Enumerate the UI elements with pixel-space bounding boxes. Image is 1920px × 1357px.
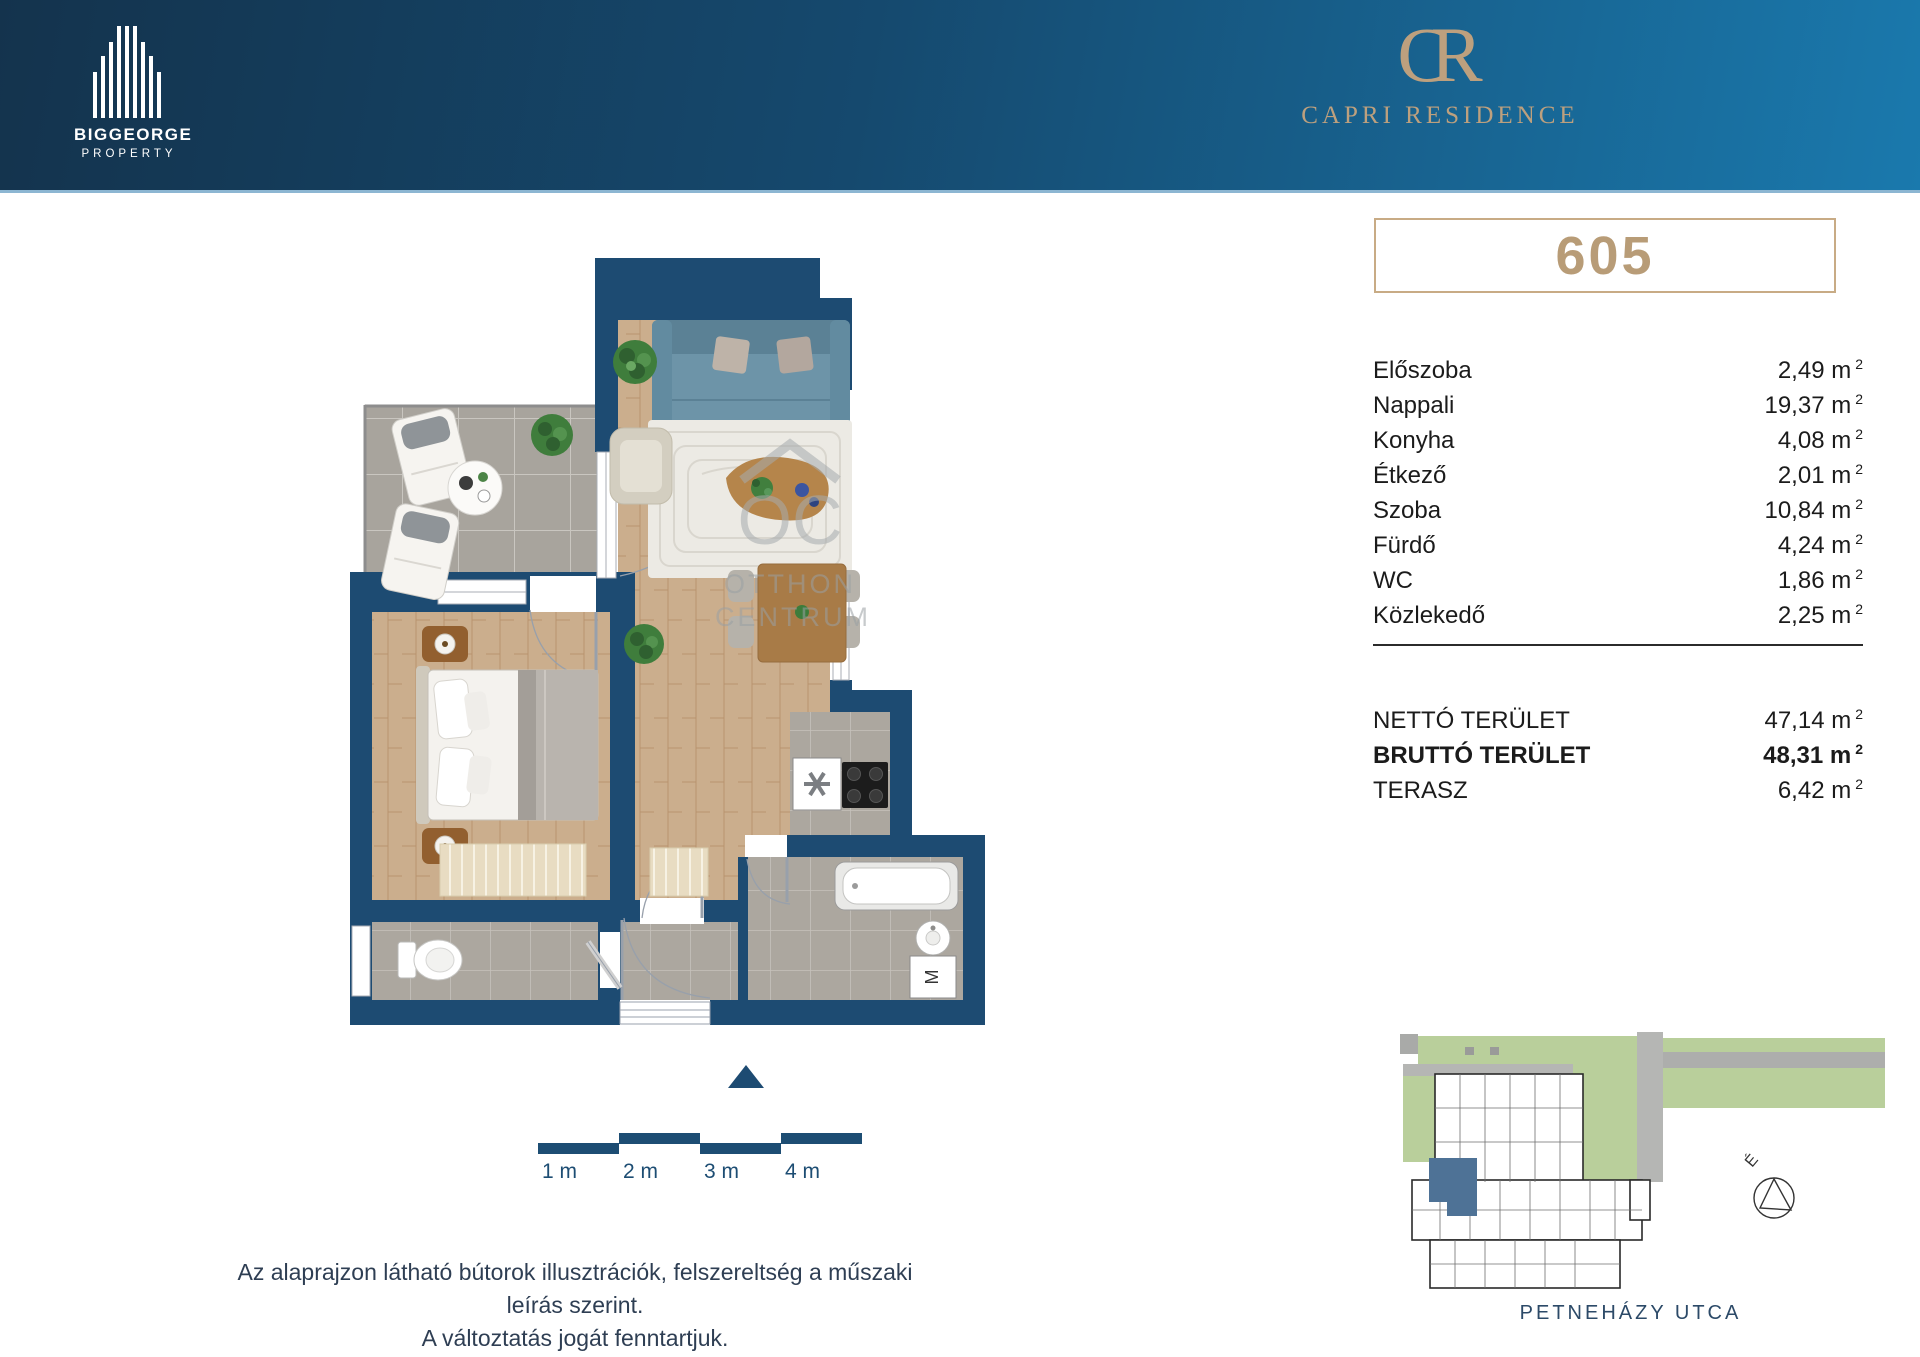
unit-number-box: 605 — [1374, 218, 1836, 293]
room-area: 4,08 m2 — [1778, 426, 1863, 455]
scale-label: 4 m — [785, 1160, 820, 1184]
area-row: WC1,86 m2 — [1373, 566, 1863, 601]
washbasin — [916, 921, 950, 955]
biggeorge-brand-text: BIGGEORGE — [74, 125, 184, 145]
total-label: BRUTTÓ TERÜLET — [1373, 742, 1590, 770]
disclaimer-line2: A változtatás jogát fenntartjuk. — [225, 1322, 925, 1355]
svg-text:OC: OC — [738, 481, 843, 559]
biggeorge-building-icon — [90, 22, 168, 118]
room-label: WC — [1373, 567, 1413, 595]
area-row: Szoba10,84 m2 — [1373, 496, 1863, 531]
room-area: 4,24 m2 — [1778, 531, 1863, 560]
bathtub — [835, 862, 958, 910]
table-divider — [1373, 644, 1863, 646]
header-banner: BIGGEORGE PROPERTY CR CAPRI RESIDENCE — [0, 0, 1920, 193]
total-label: TERASZ — [1373, 777, 1468, 805]
watermark-line2: CENTRUM — [715, 602, 865, 633]
totals-list: NETTÓ TERÜLET47,14 m2BRUTTÓ TERÜLET48,31… — [1373, 706, 1863, 811]
bed — [416, 666, 598, 824]
disclaimer-line1: Az alaprajzon látható bútorok illusztrác… — [225, 1256, 925, 1322]
scale-segment — [619, 1133, 700, 1144]
kitchen-appliances — [793, 758, 888, 810]
washing-machine: M — [910, 956, 956, 998]
room-area: 2,25 m2 — [1778, 601, 1863, 630]
hall-plant — [624, 624, 664, 664]
total-area: 48,31 m2 — [1763, 741, 1863, 770]
scale-label: 3 m — [704, 1160, 739, 1184]
capri-residence-name: CAPRI RESIDENCE — [1280, 102, 1600, 130]
area-row: TERASZ6,42 m2 — [1373, 776, 1863, 811]
area-row: Fürdő4,24 m2 — [1373, 531, 1863, 566]
scale-label: 2 m — [623, 1160, 658, 1184]
room-area: 2,01 m2 — [1778, 461, 1863, 490]
area-row: BRUTTÓ TERÜLET48,31 m2 — [1373, 741, 1863, 776]
room-label: Konyha — [1373, 427, 1454, 455]
scale-segment — [700, 1143, 781, 1154]
room-label: Fürdő — [1373, 532, 1436, 560]
room-area: 1,86 m2 — [1778, 566, 1863, 595]
svg-text:M: M — [922, 970, 942, 985]
area-row: Közlekedő2,25 m2 — [1373, 601, 1863, 636]
biggeorge-logo: BIGGEORGE PROPERTY — [74, 22, 184, 160]
floorplan-sheet: BIGGEORGE PROPERTY CR CAPRI RESIDENCE 60… — [0, 0, 1920, 1357]
street-label: PETNEHÁZY UTCA — [1403, 1302, 1858, 1325]
total-label: NETTÓ TERÜLET — [1373, 707, 1570, 735]
area-row: Nappali19,37 m2 — [1373, 391, 1863, 426]
room-label: Előszoba — [1373, 357, 1472, 385]
apartment-floorplan: M — [290, 250, 1010, 1090]
disclaimer: Az alaprajzon látható bútorok illusztrác… — [225, 1256, 925, 1355]
room-area: 2,49 m2 — [1778, 356, 1863, 385]
capri-residence-logo: CR CAPRI RESIDENCE — [1280, 16, 1600, 130]
nightstand-top — [422, 626, 468, 662]
toilet — [398, 940, 462, 980]
otthon-centrum-logo-icon: OC — [720, 432, 860, 562]
biggeorge-sub-text: PROPERTY — [74, 148, 184, 160]
hall-doormat — [650, 848, 708, 896]
area-row: Konyha4,08 m2 — [1373, 426, 1863, 461]
terrace-plant — [531, 414, 573, 456]
scale-label: 1 m — [542, 1160, 577, 1184]
room-area: 10,84 m2 — [1764, 496, 1863, 525]
room-label: Étkező — [1373, 462, 1446, 490]
otthon-centrum-watermark: OC OTTHON CENTRUM — [715, 432, 865, 633]
terrace-table — [448, 461, 502, 515]
scale-segment — [538, 1143, 619, 1154]
armchair — [610, 428, 672, 504]
scale-bar: 1 m2 m3 m4 m — [538, 1128, 868, 1188]
area-row: Előszoba2,49 m2 — [1373, 356, 1863, 391]
capri-residence-monogram: CR — [1280, 16, 1600, 94]
watermark-line1: OTTHON — [715, 569, 865, 600]
scale-segment — [781, 1133, 862, 1144]
room-label: Közlekedő — [1373, 602, 1485, 630]
living-plant — [613, 340, 657, 384]
total-area: 47,14 m2 — [1764, 706, 1863, 735]
room-label: Nappali — [1373, 392, 1454, 420]
bedroom-rug — [440, 844, 586, 896]
area-row: NETTÓ TERÜLET47,14 m2 — [1373, 706, 1863, 741]
room-area: 19,37 m2 — [1764, 391, 1863, 420]
total-area: 6,42 m2 — [1778, 776, 1863, 805]
room-label: Szoba — [1373, 497, 1441, 525]
site-plan: É — [1400, 1030, 1890, 1300]
room-list: Előszoba2,49 m2Nappali19,37 m2Konyha4,08… — [1373, 356, 1863, 636]
entrance-arrow — [728, 1065, 764, 1088]
area-row: Étkező2,01 m2 — [1373, 461, 1863, 496]
